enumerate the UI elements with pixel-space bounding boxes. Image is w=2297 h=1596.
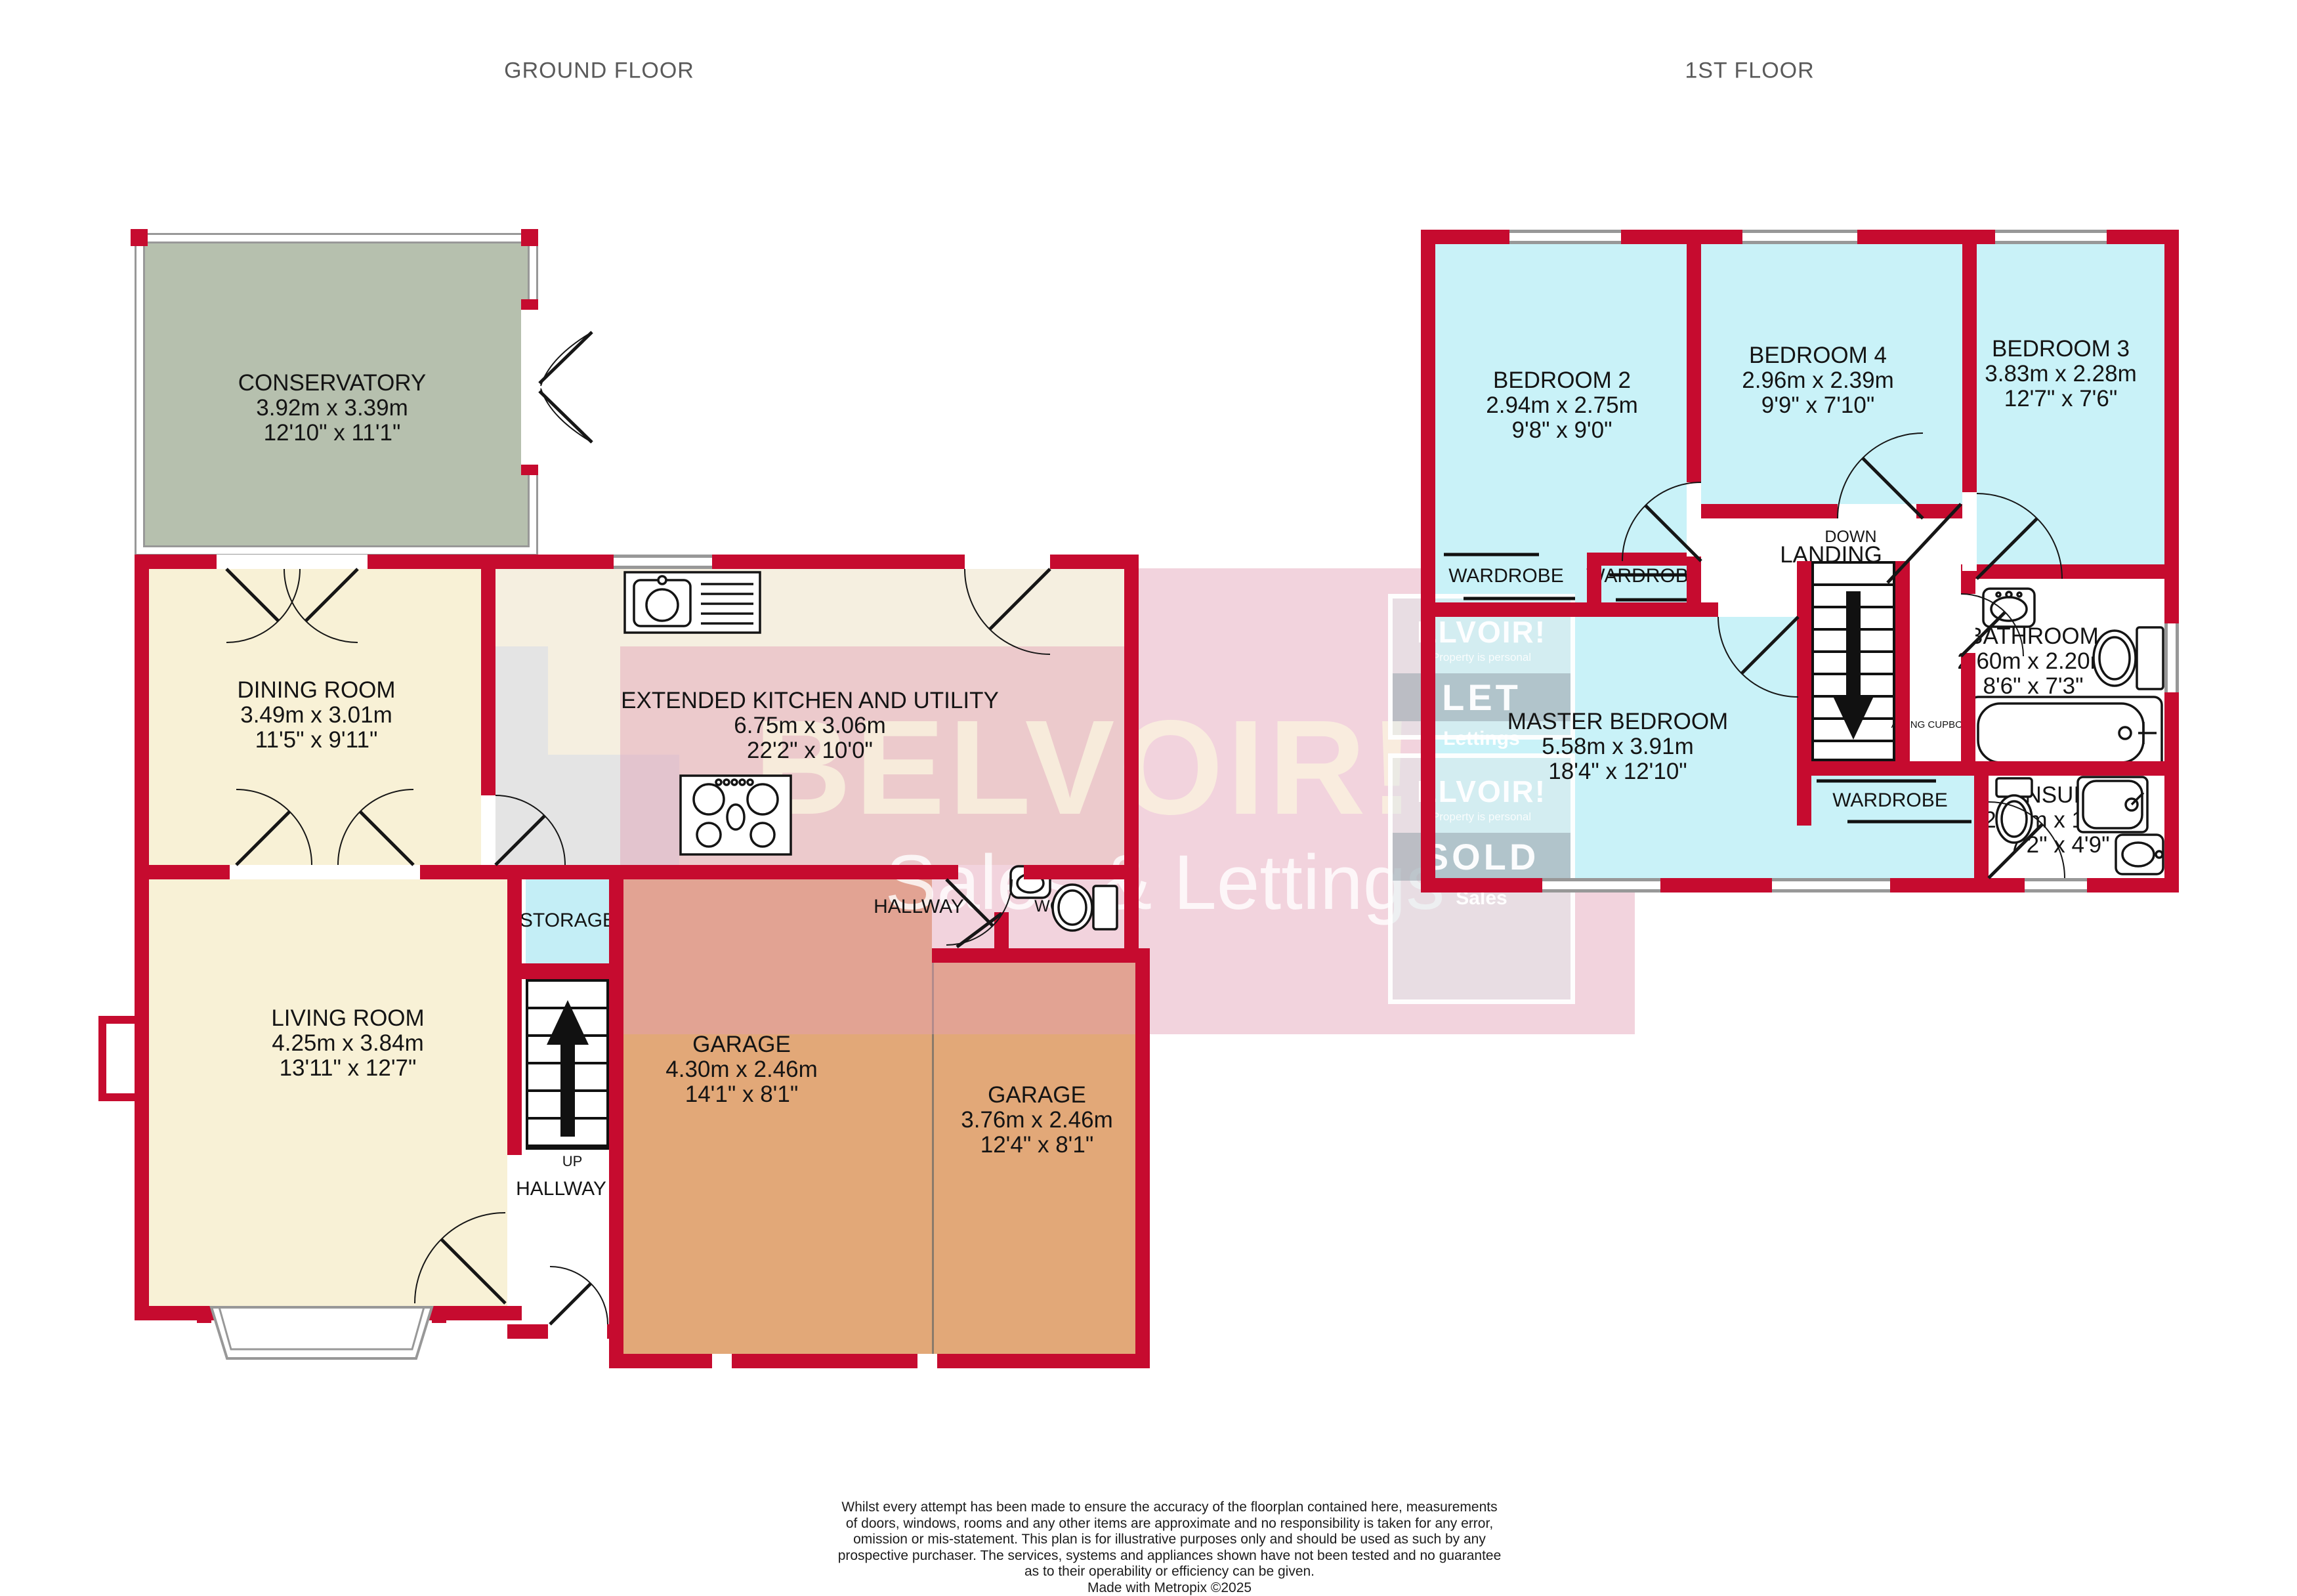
wall-segment [609, 865, 623, 1368]
staircase-ground [526, 979, 609, 1150]
conservatory-french-doors [539, 332, 592, 442]
room-label-garage-2: GARAGE3.76m x 2.46m12'4" x 8'1" [961, 1083, 1113, 1158]
wall-segment [1124, 555, 1139, 948]
door-opening [230, 865, 420, 879]
room-label-bathroom: BATHROOM2.60m x 2.20m8'6" x 7'3" [1957, 624, 2109, 699]
wall-pillar [131, 229, 148, 246]
wall-pillar [521, 229, 538, 246]
wall-pillar [521, 465, 538, 475]
up-arrow-icon [528, 982, 606, 1147]
wall-gap [917, 1354, 937, 1368]
wall-segment [1024, 865, 1124, 879]
up-label: UP [562, 1149, 583, 1174]
wall-segment [1687, 553, 1701, 607]
door-opening [1838, 504, 1916, 518]
room-label-bedroom-3: BEDROOM 33.83m x 2.28m12'7" x 7'6" [1985, 337, 2137, 411]
wall-segment [1961, 564, 2179, 579]
disclaimer-line: prospective purchaser. The services, sys… [710, 1548, 1629, 1564]
front-door-opening [548, 1324, 607, 1339]
window [1995, 230, 2107, 244]
room-label-hallway-front: HALLWAY [516, 1177, 606, 1202]
room-label-wc: WC [1034, 894, 1062, 919]
room-label-ensuite: ENSUITE2.18m x 1.44m7'2" x 4'9" [1983, 783, 2136, 858]
wall-segment [507, 865, 522, 1155]
room-label-storage: STORAGE [520, 908, 616, 933]
wall-segment [1421, 230, 1435, 892]
wall-segment [135, 1306, 522, 1320]
wall-segment [609, 1354, 1150, 1368]
down-arrow-icon [1814, 564, 1893, 759]
floorplan-canvas: GROUND FLOOR 1ST FLOOR BELVOIR! Sales & … [0, 0, 2297, 1596]
wall-pillar [197, 1306, 211, 1323]
wall-segment [481, 569, 495, 795]
metropix-credit: Made with Metropix ©2025 [710, 1580, 1629, 1596]
wall-segment [932, 948, 1150, 963]
disclaimer-line: as to their operability or efficiency ca… [710, 1564, 1629, 1580]
wall-segment [1974, 776, 1989, 878]
window [1772, 878, 1890, 892]
wall-segment [609, 865, 932, 879]
disclaimer-line: omission or mis-statement. This plan is … [710, 1532, 1629, 1548]
staircase-first [1811, 561, 1895, 761]
kitchen-floor-patch [495, 646, 548, 865]
window [1742, 230, 1857, 244]
wall-segment [2164, 230, 2179, 892]
wall-segment [511, 963, 623, 979]
door-opening [1687, 482, 1701, 556]
wall-segment [1587, 553, 1701, 566]
door-opening [1961, 594, 1975, 653]
room-label-kitchen: EXTENDED KITCHEN AND UTILITY6.75m x 3.06… [600, 688, 1020, 763]
door-opening [217, 555, 368, 569]
window [1509, 230, 1621, 244]
board-tagline-text: Property is personal [1393, 810, 1570, 824]
wardrobe-label-1: WARDROBE [1448, 564, 1564, 589]
window [1542, 878, 1660, 892]
room-label-bedroom-4: BEDROOM 42.96m x 2.39m9'9" x 7'10" [1742, 343, 1894, 418]
wardrobe-label-3: WARDROBE [1832, 788, 1948, 813]
wall-pillar [521, 299, 538, 310]
room-living [149, 879, 507, 1306]
conservatory-door-gap [521, 308, 538, 466]
room-label-master-bedroom: MASTER BEDROOM5.58m x 3.91m18'4" x 12'10… [1507, 709, 1728, 784]
room-label-living: LIVING ROOM4.25m x 3.84m13'11" x 12'7" [271, 1006, 424, 1081]
watermark-tagline: Sales & Lettings [885, 838, 1445, 927]
wall-segment [1895, 561, 1910, 761]
wall-segment [1974, 761, 2179, 776]
board-tagline-text: Property is personal [1393, 651, 1570, 664]
ground-floor-title: GROUND FLOOR [504, 58, 694, 84]
disclaimer: Whilst every attempt has been made to en… [710, 1500, 1629, 1596]
first-floor-title: 1ST FLOOR [1685, 58, 1814, 84]
wall-segment [1135, 948, 1150, 1368]
wall-segment [1435, 602, 1718, 617]
down-label: DOWN [1824, 524, 1876, 549]
wall-segment [994, 912, 1009, 948]
door-opening [965, 555, 1050, 569]
room-label-garage-1: GARAGE4.30m x 2.46m14'1" x 8'1" [665, 1032, 818, 1107]
landing-corridor [1910, 617, 1961, 682]
room-label-conservatory: CONSERVATORY 3.92m x 3.39m 12'10" x 11'1… [238, 371, 427, 446]
window [2164, 623, 2179, 692]
wall-segment [1701, 504, 1962, 518]
room-label-hallway-wc: HALLWAY [874, 894, 964, 919]
window [614, 555, 712, 569]
room-hallway-front [522, 1150, 609, 1324]
window [2025, 878, 2087, 892]
room-label-dining: DINING ROOM3.49m x 3.01m11'5" x 9'11" [237, 678, 395, 753]
wall-segment [1797, 561, 1811, 761]
board-brand-text: ELVOIR! [1393, 614, 1570, 650]
disclaimer-line: Whilst every attempt has been made to en… [710, 1500, 1629, 1516]
door-opening [1962, 492, 1977, 571]
wall-segment [1797, 761, 1975, 776]
wardrobe-label-2: WARDROBE [1586, 564, 1702, 589]
board-sold-text: SOLD [1393, 833, 1570, 881]
wall-segment [1797, 776, 1811, 826]
wall-gap [712, 1354, 732, 1368]
wall-segment [135, 555, 149, 1320]
room-label-bedroom-2: BEDROOM 22.94m x 2.75m9'8" x 9'0" [1486, 368, 1638, 443]
wall-pillar [432, 1306, 446, 1323]
disclaimer-line: of doors, windows, rooms and any other i… [710, 1516, 1629, 1532]
wall-segment [932, 865, 958, 879]
